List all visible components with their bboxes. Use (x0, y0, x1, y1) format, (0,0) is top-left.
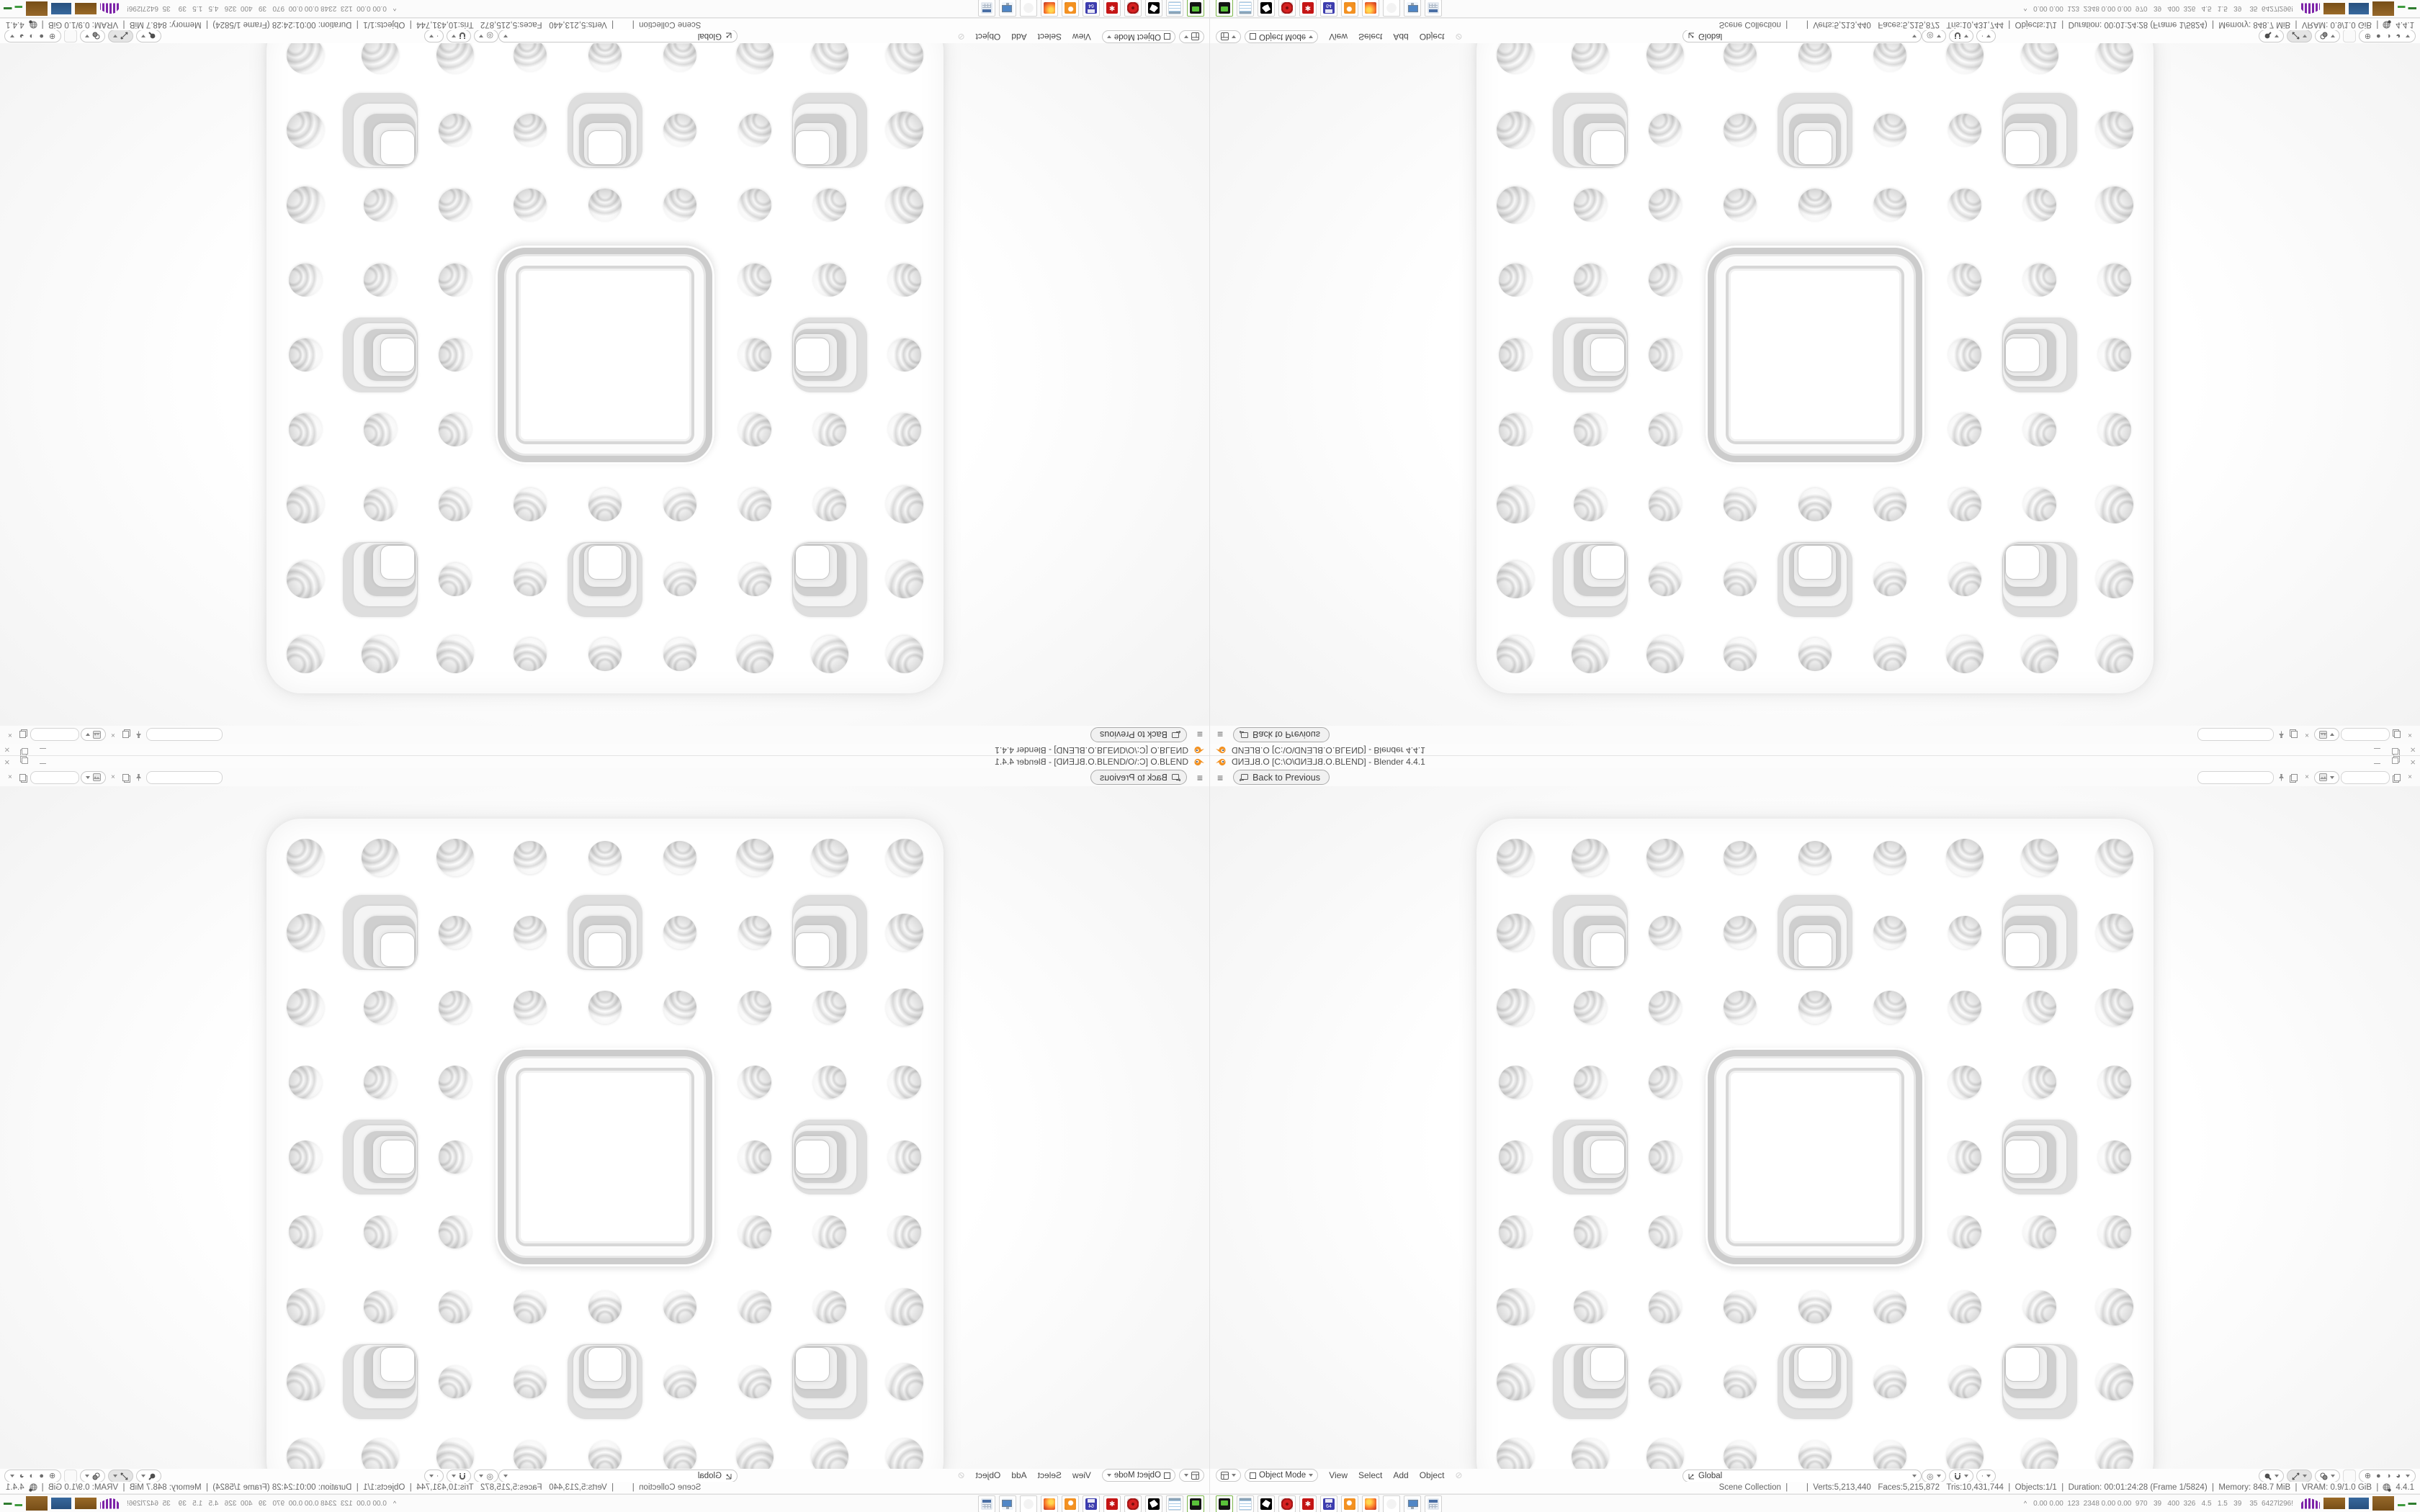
scene-name-field[interactable] (146, 771, 223, 784)
fractal-sphere (439, 563, 472, 596)
fractal-sphere (663, 43, 696, 72)
os-taskbar: ✱ 64 ^ 0.00 0.00 123 2348 0.00 0.00 970 … (1210, 0, 2420, 18)
mode-dropdown[interactable]: Object Mode (1102, 1469, 1175, 1482)
close-button[interactable]: × (4, 756, 10, 768)
red-gear-icon[interactable]: ✱ (1103, 0, 1121, 17)
shading-wireframe-icon[interactable]: ⊕ (49, 30, 55, 42)
dot-icon: · (436, 32, 439, 40)
shading-wireframe-icon[interactable]: ⊕ (2365, 1470, 2371, 1482)
proportional-edit-button[interactable]: ◎ (1922, 1470, 1946, 1482)
scene-name-field[interactable] (2197, 729, 2274, 742)
unlink-scene-icon[interactable]: × (107, 729, 119, 741)
display-settings-icon[interactable] (999, 1495, 1016, 1512)
red-badge-icon[interactable] (1124, 1495, 1142, 1512)
menu-object[interactable]: Object (976, 32, 1001, 42)
menu-object[interactable]: Object (1420, 32, 1445, 42)
menu-hamburger-icon[interactable]: ≡ (1197, 772, 1203, 783)
fractal-square-hole (1553, 895, 1628, 970)
menu-object[interactable]: Object (976, 1470, 1001, 1480)
unlink-scene-icon[interactable]: × (107, 772, 119, 783)
fractal-sphere (588, 1440, 622, 1469)
fractal-sphere (1649, 189, 1682, 222)
transform-orientation-dropdown[interactable]: Global (498, 30, 738, 42)
fractal-sphere (364, 189, 397, 222)
pin-scene-icon[interactable] (133, 772, 145, 783)
blender-version: 4.4.1 (6, 20, 24, 29)
tray-brown-icon-1[interactable] (2323, 1498, 2345, 1509)
red-badge-icon[interactable] (1278, 0, 1296, 17)
menu-select[interactable]: Select (1358, 1470, 1382, 1480)
view-layer-selector[interactable] (2314, 771, 2339, 784)
notepad-icon[interactable] (1237, 0, 1254, 17)
editor-type-button[interactable] (1179, 30, 1204, 43)
snap-button[interactable] (447, 1470, 471, 1482)
remove-view-layer-icon[interactable]: × (4, 729, 16, 741)
taskbar-pinned-apps: ✱ 64 (1216, 1495, 1442, 1512)
tray-equalizer-icon[interactable] (2301, 1498, 2320, 1509)
title-path-close: .BLEND] - Blender 4.4.1 (1332, 745, 1425, 755)
minimize-button[interactable] (40, 744, 46, 756)
fractal-sphere (663, 1290, 696, 1323)
mode-label: Object Mode (1114, 32, 1161, 41)
menu-view[interactable]: View (1329, 1470, 1348, 1480)
installer-64-icon[interactable]: 64 (1083, 1495, 1100, 1512)
fractal-square-hole (568, 93, 642, 168)
fractal-square-hole (343, 93, 418, 168)
firefox-icon[interactable] (1362, 0, 1379, 17)
shading-material-icon[interactable]: ◑ (30, 30, 35, 42)
blender-app-icon[interactable] (1062, 0, 1079, 17)
editor-type-button[interactable] (1216, 30, 1241, 43)
gizmo-extra-button[interactable]: · (1976, 30, 1996, 42)
shading-solid-icon[interactable]: ● (2376, 1470, 2381, 1482)
show-gizmo-button[interactable] (2287, 30, 2312, 42)
minimize-button[interactable] (2374, 744, 2380, 756)
disabled-tool-icon: ⊘ (1455, 1470, 1462, 1480)
view-layer-selector[interactable] (81, 729, 106, 742)
fractal-sphere (1724, 1290, 1757, 1323)
fractal-sphere (1724, 563, 1757, 596)
chevron-down-icon (452, 35, 456, 37)
fractal-sphere (1574, 189, 1607, 222)
blender-app-icon[interactable] (1062, 1495, 1079, 1512)
calculator-icon[interactable] (978, 0, 995, 17)
red-badge-icon[interactable] (1124, 0, 1142, 17)
shading-rendered-icon[interactable]: ◕ (19, 30, 24, 42)
fractal-square-hole (2002, 93, 2077, 168)
tray-overflow-chevron[interactable]: ^ (393, 5, 396, 12)
composite-screenshot: O.BLEND [C:\O\O.BLEND.BLEND] - Blender 4… (0, 0, 2420, 1512)
fractal-sphere (1649, 338, 1682, 372)
topbar-datablock-selectors: × × (4, 768, 223, 786)
tray-blue-icon[interactable] (2349, 3, 2369, 14)
tray-brown-icon-1[interactable] (75, 3, 97, 14)
dot-icon: · (436, 1472, 439, 1480)
pin-scene-icon[interactable] (133, 729, 145, 741)
fractal-sphere (663, 1440, 696, 1469)
capture-device-icon[interactable] (1187, 1495, 1204, 1512)
red-gear-icon[interactable]: ✱ (1103, 1495, 1121, 1512)
title-filename-mirrored: O.BLEND (1232, 744, 1270, 756)
tray-equalizer-icon[interactable] (2301, 4, 2320, 14)
fractal-sphere (1649, 563, 1682, 596)
shading-wireframe-icon[interactable]: ⊕ (49, 1470, 55, 1482)
new-scene-icon[interactable] (120, 772, 132, 783)
mode-dropdown[interactable]: Object Mode (1245, 1469, 1318, 1482)
proportional-edit-button[interactable]: ◎ (1922, 30, 1946, 42)
fractal-sphere (1572, 636, 1609, 673)
shading-mode-group: ⊕ ● ◑ ◕ (2359, 30, 2416, 42)
unlink-scene-icon[interactable]: × (2301, 772, 2313, 783)
minimize-button[interactable] (2374, 756, 2380, 768)
fractal-sphere (1497, 112, 1534, 149)
toggle-xray-button[interactable] (2343, 30, 2356, 42)
chevron-down-icon (1232, 1474, 1236, 1477)
installer-64-icon[interactable]: 64 (1320, 1495, 1337, 1512)
calculator-icon[interactable] (1425, 1495, 1442, 1512)
show-gizmo-button[interactable] (108, 30, 133, 42)
shading-rendered-icon[interactable]: ◕ (2396, 30, 2401, 42)
menu-hamburger-icon[interactable]: ≡ (1217, 772, 1223, 783)
annotate-visibility-button[interactable] (136, 1470, 161, 1482)
fractal-sphere (1873, 488, 1906, 521)
blender-app-icon[interactable] (1341, 1495, 1358, 1512)
capture-device-icon[interactable] (1187, 0, 1204, 17)
ghost-app-icon[interactable] (1020, 0, 1037, 17)
close-button[interactable]: × (2410, 756, 2416, 768)
transform-orientation-dropdown[interactable]: Global (1682, 1470, 1922, 1482)
proportional-edit-button[interactable]: ◎ (474, 1470, 498, 1482)
notepad-icon[interactable] (1166, 0, 1183, 17)
editor-type-button[interactable] (1216, 1469, 1241, 1482)
transform-orientation-dropdown[interactable]: Global (1682, 30, 1922, 42)
menu-hamburger-icon[interactable]: ≡ (1217, 729, 1223, 741)
fractal-sphere (663, 114, 696, 147)
mode-dropdown[interactable]: Object Mode (1102, 30, 1175, 43)
fractal-sphere (1499, 1215, 1532, 1248)
fractal-sphere (663, 916, 696, 949)
scene-name-field[interactable] (146, 729, 223, 742)
installer-64-icon[interactable]: 64 (1083, 0, 1100, 17)
tray-overflow-chevron[interactable]: ^ (2024, 1500, 2027, 1507)
snap-button[interactable] (1949, 30, 1973, 42)
shading-material-icon[interactable]: ◑ (30, 1470, 35, 1482)
fractal-sphere (813, 488, 846, 521)
gizmo-extra-button[interactable]: · (424, 1470, 444, 1482)
tray-overflow-chevron[interactable]: ^ (393, 1500, 396, 1507)
tray-brown-icon-2[interactable] (2372, 1496, 2394, 1511)
display-settings-icon[interactable] (999, 0, 1016, 17)
fractal-sphere (738, 563, 771, 596)
menu-add[interactable]: Add (1393, 32, 1408, 42)
fractal-sphere (289, 1215, 322, 1248)
shading-wireframe-icon[interactable]: ⊕ (2365, 30, 2371, 42)
window-title: O.BLEND [C:\O\O.BLEND.BLEND] - Blender 4… (1232, 744, 1425, 756)
snap-button[interactable] (447, 30, 471, 42)
remove-view-layer-icon[interactable]: × (4, 772, 16, 783)
chevron-down-icon (479, 35, 483, 37)
window-title-bar[interactable]: O.BLEND [C:\O\O.BLEND.BLEND] - Blender 4… (1210, 756, 2420, 768)
3d-viewport[interactable] (1210, 786, 2420, 1469)
show-overlays-button[interactable] (80, 1470, 105, 1482)
fractal-square-hole (1553, 542, 1628, 617)
calculator-icon[interactable] (978, 1495, 995, 1512)
tray-blue-icon[interactable] (51, 3, 71, 14)
calculator-icon[interactable] (1425, 0, 1442, 17)
fractal-sphere (1649, 1140, 1682, 1174)
fractal-sphere (1873, 841, 1906, 874)
menu-view[interactable]: View (1329, 32, 1348, 42)
shading-material-icon[interactable]: ◑ (2386, 1470, 2391, 1482)
title-filename-mirrored: O.BLEND (1232, 756, 1270, 768)
pin-scene-icon[interactable] (2275, 729, 2287, 741)
fractal-sphere (1646, 43, 1684, 74)
fractal-sphere (813, 264, 846, 297)
3d-viewport[interactable] (0, 786, 1210, 1469)
transform-orientation-dropdown[interactable]: Global (498, 1470, 738, 1482)
fractal-sphere (2096, 112, 2133, 149)
remove-view-layer-icon[interactable]: × (2404, 729, 2416, 741)
viewport-menus: View Select Add Object (1329, 1470, 1444, 1480)
restore-button[interactable] (2392, 744, 2398, 756)
magnet-icon (459, 32, 466, 40)
remove-view-layer-icon[interactable]: × (2404, 772, 2416, 783)
editor-type-button[interactable] (1179, 1469, 1204, 1482)
back-to-previous-button[interactable]: Back to Previous (1090, 770, 1187, 785)
menu-select[interactable]: Select (1038, 1470, 1062, 1480)
minimize-button[interactable] (40, 756, 46, 768)
gimp-icon[interactable] (1145, 1495, 1162, 1512)
new-scene-icon[interactable] (120, 729, 132, 741)
view-layer-selector[interactable] (2314, 729, 2339, 742)
display-settings-icon[interactable] (1404, 0, 1421, 17)
new-view-layer-icon[interactable] (2391, 729, 2403, 741)
display-settings-icon[interactable] (1404, 1495, 1421, 1512)
back-to-previous-button[interactable]: Back to Previous (1233, 770, 1330, 785)
tray-brown-icon-1[interactable] (75, 1498, 97, 1509)
pin-scene-icon[interactable] (2275, 772, 2287, 783)
title-filename-mirrored-2: O.BLEND (1088, 744, 1126, 756)
view-layer-name-field[interactable] (30, 771, 79, 784)
snap-button[interactable] (1949, 1470, 1973, 1482)
toggle-xray-button[interactable] (2343, 1470, 2356, 1482)
tray-blue-icon[interactable] (2349, 1498, 2369, 1509)
tray-brown-icon-2[interactable] (26, 1496, 48, 1511)
menu-select[interactable]: Select (1358, 32, 1382, 42)
chevron-down-icon (2406, 35, 2410, 37)
menu-hamburger-icon[interactable]: ≡ (1197, 729, 1203, 741)
fractal-sphere (2098, 413, 2131, 446)
menu-select[interactable]: Select (1038, 32, 1062, 42)
gimp-icon[interactable] (1258, 0, 1275, 17)
tray-brown-icon-2[interactable] (2372, 1, 2394, 16)
menu-add[interactable]: Add (1393, 1470, 1408, 1480)
window-title: O.BLEND [C:\O\O.BLEND.BLEND] - Blender 4… (1232, 756, 1425, 768)
close-button[interactable]: × (4, 744, 10, 756)
fractal-sphere (1497, 486, 1534, 523)
view-layer-selector[interactable] (81, 771, 106, 784)
shading-rendered-icon[interactable]: ◕ (19, 1470, 24, 1482)
red-badge-icon[interactable] (1278, 1495, 1296, 1512)
fractal-sphere (1946, 839, 1984, 876)
blender-window-top-right: O.BLEND [C:\O\O.BLEND.BLEND] - Blender 4… (1210, 0, 2420, 756)
red-gear-icon[interactable]: ✱ (1299, 0, 1317, 17)
proportional-edit-icon: ◎ (486, 32, 493, 41)
red-gear-icon[interactable]: ✱ (1299, 1495, 1317, 1512)
fractal-sphere (2023, 1066, 2056, 1099)
fractal-sphere (1873, 638, 1906, 671)
tray-green-indicator (4, 6, 22, 12)
restore-button[interactable] (22, 744, 28, 756)
fractal-square-hole (568, 1344, 642, 1419)
shading-rendered-icon[interactable]: ◕ (2396, 1470, 2401, 1482)
chevron-down-icon (2330, 776, 2334, 779)
fractal-sphere (2096, 1438, 2133, 1469)
viewport-header: Object Mode View Select Add Object ⊘ Glo… (0, 1469, 1210, 1482)
window-controls: × (4, 756, 46, 768)
ghost-app-icon[interactable] (1020, 1495, 1037, 1512)
installer-64-icon[interactable]: 64 (1320, 0, 1337, 17)
fractal-sphere (362, 839, 399, 876)
blender-app-icon[interactable] (1341, 0, 1358, 17)
menu-view[interactable]: View (1072, 32, 1091, 42)
gizmo-extra-button[interactable]: · (1976, 1470, 1996, 1482)
chevron-down-icon (503, 35, 508, 37)
show-overlays-button[interactable] (80, 30, 105, 42)
back-to-previous-button[interactable]: Back to Previous (1090, 727, 1187, 742)
system-tray: ^ 0.00 0.00 123 2348 0.00 0.00 970 39 40… (4, 0, 396, 17)
ghost-app-icon[interactable] (1383, 0, 1400, 17)
tray-blue-icon[interactable] (51, 1498, 71, 1509)
fractal-sphere (1948, 916, 1981, 949)
mode-dropdown[interactable]: Object Mode (1245, 30, 1318, 43)
fractal-render-plate (266, 819, 944, 1469)
restore-button[interactable] (22, 756, 28, 768)
tray-brown-icon-2[interactable] (26, 1, 48, 16)
tray-overflow-chevron[interactable]: ^ (2024, 5, 2027, 12)
fractal-sphere (663, 841, 696, 874)
close-button[interactable]: × (2410, 744, 2416, 756)
fractal-sphere (1724, 991, 1757, 1024)
chevron-down-icon (2330, 734, 2334, 737)
3d-viewport[interactable] (1210, 43, 2420, 726)
fractal-sphere (1873, 114, 1906, 147)
unlink-scene-icon[interactable]: × (2301, 729, 2313, 741)
mode-label: Object Mode (1114, 1471, 1161, 1480)
show-overlays-button[interactable] (2315, 1470, 2340, 1482)
capture-device-icon[interactable] (1216, 1495, 1233, 1512)
new-view-layer-icon[interactable] (2391, 772, 2403, 783)
menu-add[interactable]: Add (1011, 1470, 1026, 1480)
fractal-sphere (738, 189, 771, 222)
fractal-sphere (1948, 1066, 1981, 1099)
fractal-sphere (514, 488, 547, 521)
view-layer-name-field[interactable] (2341, 771, 2390, 784)
gizmo-extra-button[interactable]: · (424, 30, 444, 42)
window-title-bar[interactable]: O.BLEND [C:\O\O.BLEND.BLEND] - Blender 4… (0, 756, 1210, 768)
new-view-layer-icon[interactable] (17, 772, 29, 783)
view-layer-name-field[interactable] (2341, 729, 2390, 742)
back-to-previous-button[interactable]: Back to Previous (1233, 727, 1330, 742)
fractal-sphere (287, 1363, 324, 1400)
3d-viewport[interactable] (0, 43, 1210, 726)
fractal-sphere (588, 1290, 622, 1323)
fractal-sphere (813, 1215, 846, 1248)
shading-solid-icon[interactable]: ● (39, 1470, 44, 1482)
firefox-icon[interactable] (1362, 1495, 1379, 1512)
tray-brown-icon-1[interactable] (2323, 3, 2345, 14)
firefox-icon[interactable] (1041, 1495, 1058, 1512)
fractal-sphere (886, 914, 923, 951)
fractal-sphere (2098, 1140, 2131, 1174)
fractal-sphere (1574, 991, 1607, 1024)
toggle-xray-button[interactable] (64, 30, 77, 42)
annotate-visibility-button[interactable] (2259, 1470, 2284, 1482)
fractal-sphere (436, 839, 474, 876)
mode-label: Object Mode (1259, 32, 1306, 41)
new-view-layer-icon[interactable] (17, 729, 29, 741)
menu-object[interactable]: Object (1420, 1470, 1445, 1480)
viewport-header-middle: ◎ · (1922, 1470, 1996, 1482)
notepad-icon[interactable] (1237, 1495, 1254, 1512)
menu-add[interactable]: Add (1011, 32, 1026, 42)
editor-type-icon (1191, 1472, 1199, 1480)
fractal-sphere (1649, 916, 1682, 949)
show-overlays-button[interactable] (2315, 30, 2340, 42)
window-title-bar[interactable]: O.BLEND [C:\O\O.BLEND.BLEND] - Blender 4… (0, 744, 1210, 756)
fractal-sphere (886, 636, 923, 673)
ghost-app-icon[interactable] (1383, 1495, 1400, 1512)
fractal-sphere (1798, 991, 1832, 1024)
fractal-sphere (886, 186, 923, 224)
shading-mode-group: ⊕ ● ◑ ◕ (4, 30, 61, 42)
shading-solid-icon[interactable]: ● (2376, 30, 2381, 42)
capture-device-icon[interactable] (1216, 0, 1233, 17)
tray-monitor-readout: 0.00 0.00 123 2348 0.00 0.00 970 39 400 … (127, 1500, 387, 1508)
tray-equalizer-icon[interactable] (100, 1498, 119, 1509)
shading-solid-icon[interactable]: ● (39, 30, 44, 42)
new-scene-icon[interactable] (2288, 772, 2300, 783)
annotate-visibility-button[interactable] (2259, 30, 2284, 42)
proportional-edit-button[interactable]: ◎ (474, 30, 498, 42)
toggle-xray-button[interactable] (64, 1470, 77, 1482)
notepad-icon[interactable] (1166, 1495, 1183, 1512)
show-gizmo-button[interactable] (2287, 1470, 2312, 1482)
show-gizmo-button[interactable] (108, 1470, 133, 1482)
topbar-datablock-selectors: × × (2197, 768, 2416, 786)
shading-material-icon[interactable]: ◑ (2386, 30, 2391, 42)
fractal-sphere (1948, 1215, 1981, 1248)
gimp-icon[interactable] (1258, 1495, 1275, 1512)
gimp-icon[interactable] (1145, 0, 1162, 17)
blender-logo-icon (1193, 758, 1204, 766)
fractal-sphere (364, 1290, 397, 1323)
fractal-sphere (439, 991, 472, 1024)
pen-icon (2264, 1472, 2272, 1480)
fractal-sphere (588, 488, 622, 521)
firefox-icon[interactable] (1041, 0, 1058, 17)
window-title-bar[interactable]: O.BLEND [C:\O\O.BLEND.BLEND] - Blender 4… (1210, 744, 2420, 756)
scene-name-field[interactable] (2197, 771, 2274, 784)
annotate-visibility-button[interactable] (136, 30, 161, 42)
magnet-icon (459, 1472, 466, 1480)
new-scene-icon[interactable] (2288, 729, 2300, 741)
tray-equalizer-icon[interactable] (100, 4, 119, 14)
menu-view[interactable]: View (1072, 1470, 1091, 1480)
fractal-square-hole (792, 93, 867, 168)
view-layer-name-field[interactable] (30, 729, 79, 742)
restore-button[interactable] (2392, 756, 2398, 768)
